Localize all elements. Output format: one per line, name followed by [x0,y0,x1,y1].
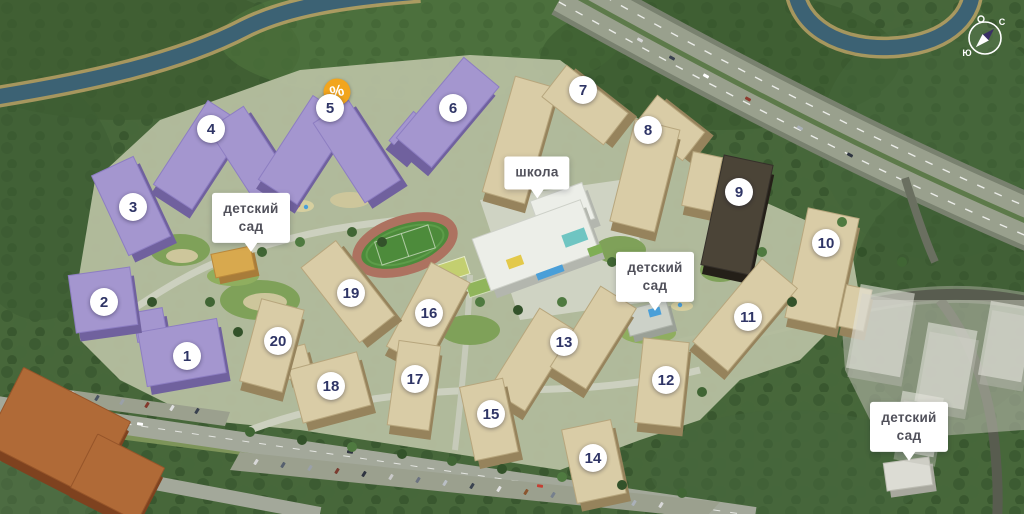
building-marker-18[interactable]: 18 [317,372,345,400]
school-label: школа [504,156,569,189]
building-marker-6[interactable]: 6 [439,94,467,122]
kindergarten-label-2: детский сад [616,252,694,302]
building-marker-7[interactable]: 7 [569,76,597,104]
building-marker-19[interactable]: 19 [337,279,365,307]
building-marker-1[interactable]: 1 [173,342,201,370]
building-marker-16[interactable]: 16 [415,299,443,327]
building-marker-13[interactable]: 13 [550,328,578,356]
compass-south-label: Ю [962,48,971,58]
building-marker-5[interactable]: 5 [316,94,344,122]
building-marker-20[interactable]: 20 [264,327,292,355]
building-marker-17[interactable]: 17 [401,365,429,393]
building-marker-12[interactable]: 12 [652,366,680,394]
building-marker-15[interactable]: 15 [477,400,505,428]
building-marker-8[interactable]: 8 [634,116,662,144]
masterplan: % 1 2 3 4 5 6 7 8 9 10 11 12 13 14 15 16… [0,0,1024,514]
compass-icon: С Ю [952,4,1018,70]
kindergarten-label-1: детский сад [212,193,290,243]
building-marker-2[interactable]: 2 [90,288,118,316]
building-marker-3[interactable]: 3 [119,193,147,221]
building-marker-9[interactable]: 9 [725,178,753,206]
building-marker-10[interactable]: 10 [812,229,840,257]
building-marker-4[interactable]: 4 [197,115,225,143]
kindergarten-label-3: детский сад [870,402,948,452]
building-marker-14[interactable]: 14 [579,444,607,472]
building-marker-11[interactable]: 11 [734,303,762,331]
compass-north-label: С [999,17,1006,27]
